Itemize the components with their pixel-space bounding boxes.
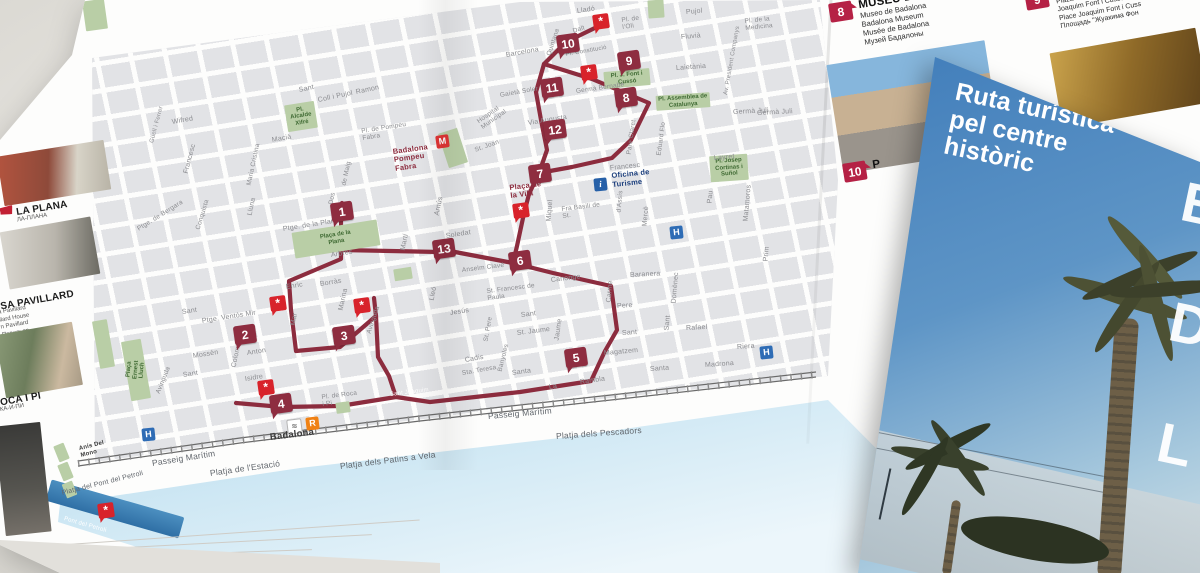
- photographed-brochure-scene: Plaça de la PlanaPl. J. Font i CussóPl. …: [0, 0, 1200, 573]
- cover-panel: Ruta turística pel centre històric B D L: [0, 0, 1200, 573]
- cover-brochure: Ruta turística pel centre històric B D L: [0, 0, 1200, 573]
